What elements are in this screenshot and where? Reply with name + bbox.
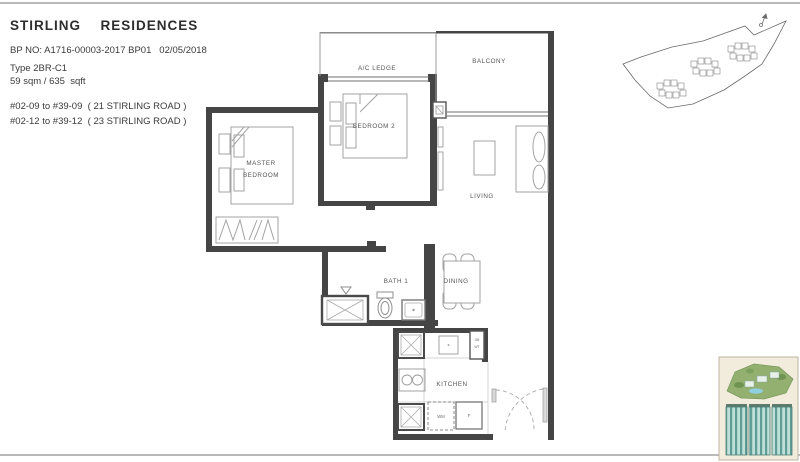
prep-counter: [439, 336, 458, 354]
bath-fixtures: [322, 287, 425, 324]
wt-label: WT: [474, 345, 479, 349]
vanity: [402, 300, 425, 320]
north-arrow-icon: [760, 14, 768, 27]
kitchen-sink-top: [398, 332, 424, 358]
column-box: [433, 102, 446, 118]
fridge: F: [456, 402, 482, 429]
tv-console: [438, 127, 443, 190]
site-map: [623, 14, 786, 108]
room-label-ac-ledge: A/C LEDGE: [358, 65, 396, 72]
room-label-kitchen: KITCHEN: [436, 381, 467, 388]
entrance-door: [492, 388, 547, 432]
room-label-master-2: BEDROOM: [243, 172, 279, 179]
room-label-living: LIVING: [470, 193, 494, 200]
db-label: DB: [475, 338, 480, 342]
tower-elevations: [726, 404, 792, 455]
shower-shaft: [322, 296, 368, 324]
room-label-bath: BATH 1: [384, 278, 409, 285]
room-label-master-1: MASTER: [246, 160, 275, 167]
floorplan-drawing: DB WT WM F A/C LEDGE BALCO: [0, 0, 800, 462]
thumbnail-card: [719, 357, 798, 460]
site-map-block-cluster-3: [728, 43, 757, 61]
washing-machine: WM: [428, 402, 454, 430]
fridge-label: F: [468, 413, 471, 418]
hob: [399, 369, 425, 391]
site-map-block-cluster-1: [657, 80, 686, 98]
db-wt-cabinet: DB WT: [470, 331, 484, 359]
room-label-dining: DINING: [443, 278, 468, 285]
washing-machine-label: WM: [437, 414, 445, 419]
room-label-balcony: BALCONY: [472, 58, 506, 65]
room-label-bedroom2: BEDROOM 2: [353, 123, 395, 130]
kitchen-sink-bottom: [398, 404, 424, 430]
sofa: [516, 126, 548, 192]
site-map-block-cluster-2: [691, 58, 720, 76]
walls: [206, 31, 554, 440]
coffee-table: [474, 141, 495, 175]
wardrobe: [216, 217, 278, 243]
